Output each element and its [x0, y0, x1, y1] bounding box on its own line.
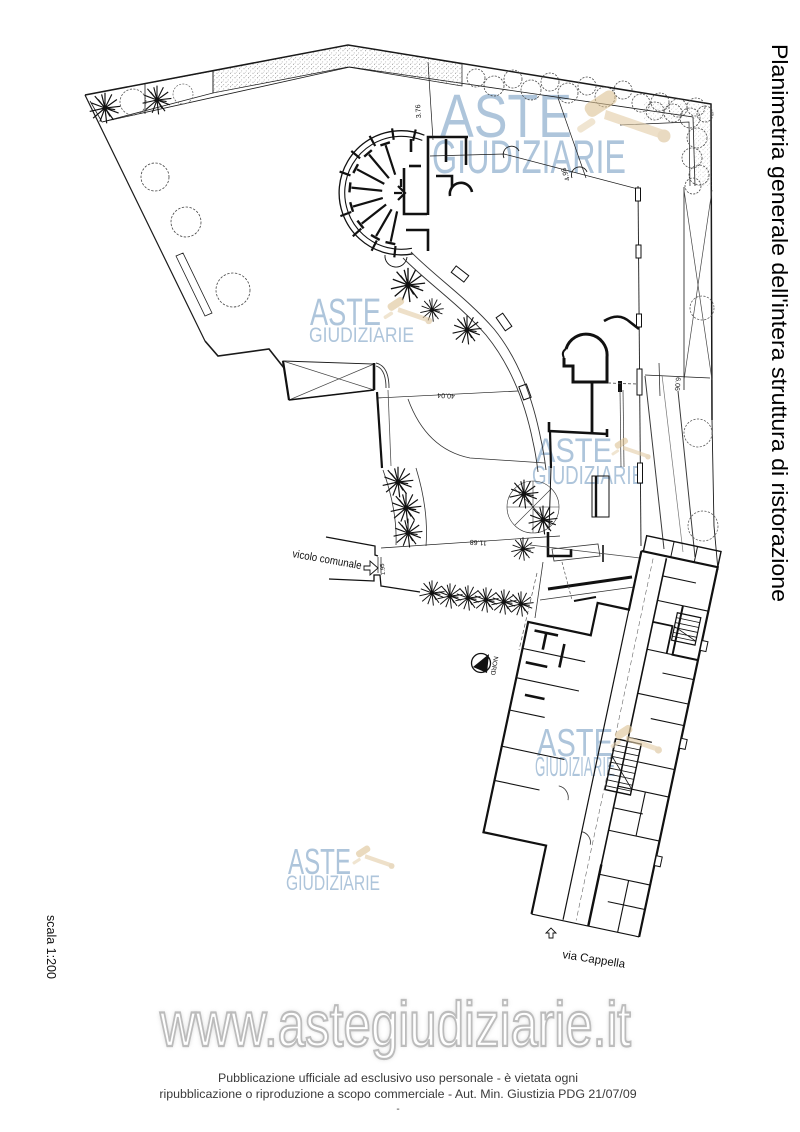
svg-text:www.astegiudiziarie.it: www.astegiudiziarie.it — [159, 990, 631, 1060]
svg-text:1.95: 1.95 — [380, 563, 387, 576]
svg-text:Pubblicazione ufficiale ad esc: Pubblicazione ufficiale ad esclusivo uso… — [218, 1071, 578, 1085]
svg-text:GIUDIZIARIE: GIUDIZIARIE — [309, 324, 414, 347]
svg-text:GIUDIZIARIE: GIUDIZIARIE — [532, 460, 644, 490]
svg-text:40.04: 40.04 — [437, 391, 455, 399]
svg-text:Planimetria generale dell'inte: Planimetria generale dell'intera struttu… — [767, 44, 792, 602]
svg-text:6.06: 6.06 — [673, 377, 681, 391]
svg-text:11.68: 11.68 — [470, 538, 488, 546]
svg-text:-: - — [396, 1104, 399, 1115]
svg-text:GIUDIZIARIE: GIUDIZIARIE — [286, 872, 380, 895]
svg-text:3.76: 3.76 — [415, 104, 423, 118]
svg-text:ripubblicazione o riproduzione: ripubblicazione o riproduzione a scopo c… — [159, 1087, 636, 1101]
svg-text:scala 1:200: scala 1:200 — [44, 915, 58, 979]
